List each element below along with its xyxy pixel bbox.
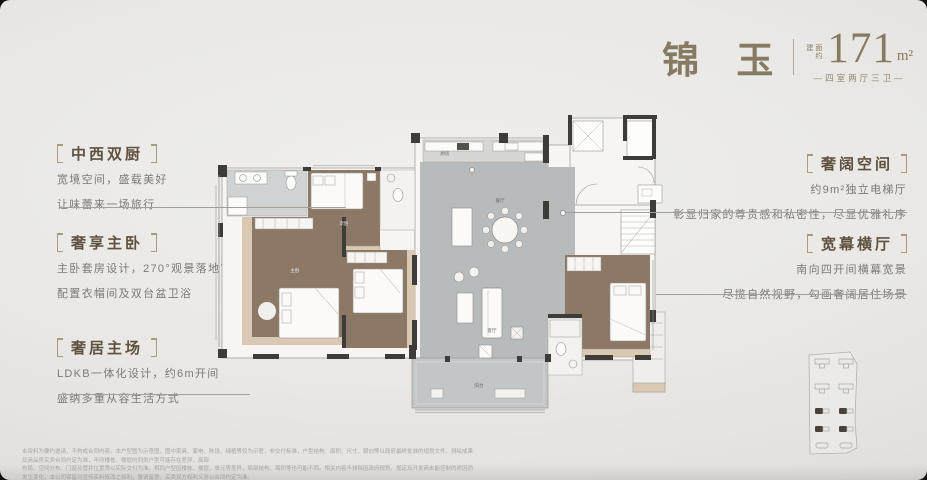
unit-name: 锦 玉 [662,30,789,84]
floor-plan-drawing: 厨房 餐厅 客厅 阳台 主卧 次卧 [195,105,675,435]
site-map [800,350,866,456]
bracket-left-icon [807,234,814,253]
callout-line: 让味蕾来一场旅行 [57,196,168,214]
callout-elevator-hall: 奢阔空间 约9m²独立电梯厅 彰显归家的尊贵感和私密性，尽显优雅礼序 [673,153,907,224]
bracket-left-icon [57,338,64,357]
master-bedroom [242,217,345,345]
callout-line: 约9m²独立电梯厅 [673,181,907,199]
callout-dual-kitchen: 中西双厨 宽境空间，盛载美好 让味蕾来一场旅行 [57,143,168,214]
callout-title: 奢居主场 [71,337,143,358]
leader-line-elevator [566,212,907,213]
leader-node [561,211,566,216]
area-prefix: 建面 约 [806,45,824,61]
callout-line: 彰显归家的尊贵感和私密性，尽显优雅礼序 [673,206,907,224]
bottom-shade [0,464,927,480]
callout-line: 南向四开间横幕宽景 [723,261,908,279]
site-map-drawing [800,350,866,456]
bracket-left-icon [57,144,64,163]
bracket-right-icon [900,154,907,173]
bathroom-2 [380,170,415,230]
header: 锦 玉 建面 约 171 m² —四室两厅三卫— [662,30,913,84]
floor-plan: 厨房 餐厅 客厅 阳台 主卧 次卧 [195,105,675,435]
svg-text:次卧: 次卧 [339,220,349,227]
leader-line-ldk [60,394,250,395]
area-value: 171 [827,31,895,67]
bracket-right-icon [150,144,157,163]
bedroom-4 [345,250,415,348]
bracket-left-icon [807,154,814,173]
bracket-right-icon [150,338,157,357]
header-divider [793,39,794,75]
bathroom-3 [548,318,582,375]
svg-text:厨房: 厨房 [440,150,450,157]
bracket-right-icon [150,233,157,252]
svg-text:阳台: 阳台 [474,382,484,389]
callout-line: 宽境空间，盛载美好 [57,171,168,189]
poster-canvas: 锦 玉 建面 约 171 m² —四室两厅三卫— 中西双厨 宽境空间，盛载美好 … [0,0,927,480]
callout-title: 中西双厨 [71,143,143,164]
stairs [621,210,655,254]
callout-title: 奢阔空间 [821,153,893,174]
svg-text:客厅: 客厅 [487,327,497,334]
svg-text:主卧: 主卧 [290,267,300,274]
bathroom-1 [227,170,307,216]
callout-title: 奢享主卧 [71,232,143,253]
callout-title: 宽幕横厅 [821,233,893,254]
bracket-right-icon [900,234,907,253]
area-block: 建面 约 171 m² —四室两厅三卫— [806,31,913,84]
leader-node [470,168,475,173]
callout-line: 尽揽自然视野，勾画奢阔居住场景 [723,286,908,304]
dining-area [452,207,528,252]
svg-text:餐厅: 餐厅 [495,197,505,204]
area-prefix-top: 建面 [806,45,824,53]
leader-line-living [656,294,907,295]
room-layout-label: —四室两厅三卫— [814,72,906,84]
area-prefix-bottom: 约 [806,53,824,61]
leader-line-kitchen [60,207,346,208]
disclaimer-line: 本资料为要约邀请，不构成合同内容。本户型图为示意图，图中家具、家电、陈设、绿植等… [22,448,474,465]
area-unit: m² [897,48,913,65]
bracket-left-icon [57,233,64,252]
site-boundary [809,352,857,454]
